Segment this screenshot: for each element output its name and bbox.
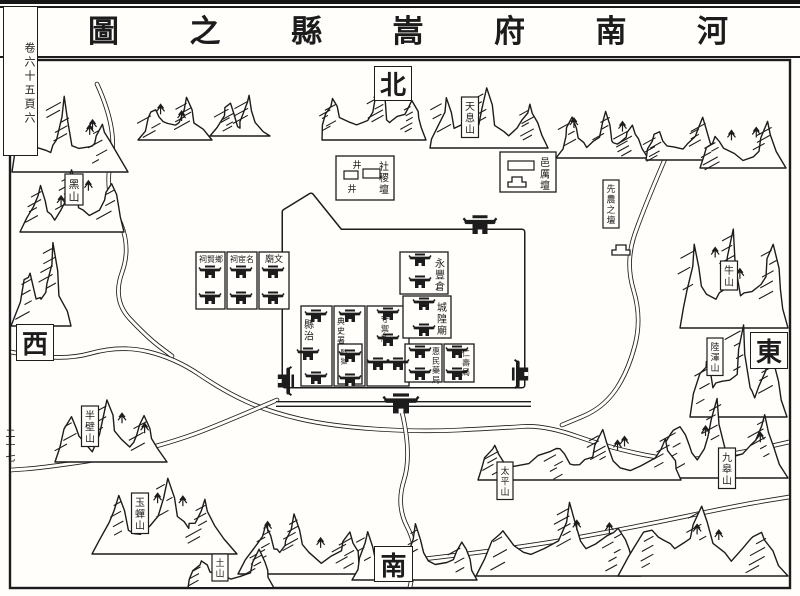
name-cartouche: 九皋山: [719, 448, 736, 489]
title-char: 之: [190, 17, 221, 48]
compound-label: 局: [462, 368, 470, 377]
mountain-ridge: [352, 524, 477, 580]
mountain-ridge: [700, 121, 786, 168]
well-glyph: 井: [352, 159, 361, 171]
building-door: [423, 307, 426, 310]
building-door: [419, 355, 422, 358]
compound-label: 史: [337, 326, 345, 336]
title-char: 嵩: [393, 17, 424, 48]
mountain-ridge: [618, 506, 788, 576]
mountain-name-label: 農: [606, 194, 615, 206]
building-door: [209, 275, 212, 278]
building-door: [399, 409, 404, 414]
compound-label: 厲: [540, 169, 550, 181]
mountain-name-label: 九: [722, 452, 732, 464]
compound-label: 典: [337, 316, 345, 326]
mountain: [210, 95, 270, 136]
compound-label: 仁: [462, 348, 470, 358]
mountain-name-label: 天: [465, 102, 475, 113]
compound-label: 永: [435, 257, 445, 270]
compound-label: 獄: [341, 357, 348, 366]
mountain: [92, 478, 237, 554]
building-door: [377, 367, 380, 370]
name-cartouche: 陸渾山: [707, 338, 723, 376]
margin-page-number: 二十七: [1, 428, 16, 464]
compound-label: 禦: [381, 324, 389, 334]
mountain-name-label: 山: [722, 475, 732, 487]
mountain-name-label: 蟬: [135, 509, 145, 521]
pine-tree-icon: [727, 128, 760, 141]
map-title: 圖 之 縣 嵩 府 南 河: [0, 6, 800, 58]
building-door: [315, 381, 318, 384]
building-door: [272, 301, 275, 304]
mountain-name-label: 太: [500, 465, 509, 477]
compound-label: 城: [437, 302, 447, 314]
mountain: [618, 506, 788, 576]
compound-label: 社: [379, 160, 389, 173]
mountain: [11, 243, 71, 326]
compound-label: 惠: [432, 346, 440, 356]
compound-label: 縣: [304, 319, 314, 331]
compound-label: 隍: [437, 313, 447, 326]
building-door: [387, 343, 390, 346]
temple-label: 祠賢鄉: [199, 254, 223, 264]
compass-north: 北: [374, 66, 412, 101]
building-door: [240, 301, 243, 304]
mountain-name-label: 壇: [606, 215, 615, 227]
building-door: [419, 285, 422, 288]
mountain-name-label: 半: [85, 409, 95, 422]
name-cartouche: 太平山: [497, 462, 513, 500]
mountain: [188, 549, 274, 588]
mountain-name-label: 山: [500, 487, 509, 498]
compound-label: 守: [381, 314, 389, 324]
mountain-name-label: 山: [215, 569, 224, 580]
altar-icon: [612, 245, 630, 255]
name-cartouche: 玉蟬山: [132, 493, 149, 534]
compound-label: 倉: [435, 280, 445, 293]
mountain: [476, 502, 641, 576]
mountain-name-label: 山: [724, 277, 734, 289]
building-door: [419, 377, 422, 380]
building-door: [456, 355, 459, 358]
name-cartouche: 黑山: [65, 174, 83, 205]
mountain-name-label: 皋: [722, 463, 732, 476]
building-door: [349, 319, 352, 322]
mountain-name-label: 之: [606, 204, 615, 216]
name-cartouche: 半壁山: [82, 406, 99, 447]
mountain: [430, 88, 548, 148]
compound-label: 壇: [540, 179, 550, 192]
compound-label: 署: [337, 336, 345, 345]
compass-east: 東: [750, 332, 788, 369]
building-door: [209, 301, 212, 304]
compound-label: 藥: [432, 365, 440, 375]
mountain-name-label: 渾: [710, 353, 719, 364]
mountain-name-label: 山: [69, 191, 80, 204]
building-door: [478, 230, 483, 235]
mountain-name-label: 山: [710, 363, 719, 374]
mountain-ridge: [430, 88, 548, 148]
building-door: [240, 275, 243, 278]
compound-label: 稷: [379, 173, 389, 185]
well-glyph: 井: [347, 183, 356, 195]
title-char: 河: [697, 17, 728, 48]
building-door: [397, 367, 400, 370]
building-door: [349, 359, 352, 362]
building-door: [307, 357, 310, 360]
compound-label: 壽: [462, 358, 470, 368]
temple-label: 廟文: [265, 253, 283, 265]
compass-south: 南: [374, 546, 413, 582]
title-char: 圖: [88, 17, 119, 48]
name-cartouche: 土山: [212, 554, 228, 581]
compass-west: 西: [16, 324, 54, 361]
pine-tree-icon: [570, 118, 627, 132]
title-char: 府: [494, 17, 525, 48]
mountain: [55, 400, 167, 462]
building-door: [315, 319, 318, 322]
mountain-name-label: 牛: [724, 264, 734, 277]
mountain-name-label: 壁: [85, 421, 95, 434]
mountain-name-label: 山: [85, 433, 95, 445]
mountain-ridge: [11, 243, 71, 326]
building-door: [272, 275, 275, 278]
compound-label: 所: [381, 333, 389, 343]
compound-label: 民: [432, 357, 440, 366]
mountain-name-label: 黑: [69, 178, 80, 191]
compound-label: 局: [432, 376, 440, 385]
name-cartouche: 先農之壇: [603, 180, 619, 228]
mountain: [352, 524, 477, 580]
building-door: [419, 263, 422, 266]
compound-label: 壇: [379, 183, 389, 196]
name-cartouche: 牛山: [721, 261, 738, 290]
folio-label: 卷六十五頁六: [3, 6, 38, 156]
compound-label: 監: [341, 348, 348, 357]
mountain-name-label: 玉: [135, 498, 145, 509]
building-door: [456, 377, 459, 380]
title-char: 縣: [291, 17, 322, 48]
compound-label: 邑: [540, 157, 550, 169]
temple-label: 祠宦名: [230, 254, 254, 264]
mountain-name-label: 平: [500, 477, 509, 488]
mountain-ridge: [55, 400, 167, 462]
mountain-name-label: 息: [465, 112, 475, 125]
mountain-name-label: 土: [215, 557, 224, 569]
mountain: [137, 97, 212, 140]
compound-label: 廟: [437, 324, 447, 337]
building-door: [349, 383, 352, 386]
building-door: [524, 372, 528, 376]
mountain: [556, 111, 648, 158]
mountain-name-label: 山: [465, 124, 475, 136]
name-cartouche: 天息山: [462, 97, 479, 138]
mountain-name-label: 先: [606, 183, 615, 195]
mountain: [700, 121, 786, 169]
building-door: [423, 333, 426, 336]
mountain-name-label: 山: [135, 520, 145, 532]
mountain-ridge: [210, 95, 270, 136]
mountain-ridge: [92, 478, 237, 554]
map-page: 圖 之 縣 嵩 府 南 河 卷六十五頁六 二十七 北 南 西 東 井井縣治典史署…: [0, 0, 800, 596]
building-door: [278, 379, 282, 383]
title-char: 南: [596, 17, 627, 48]
mountain-name-label: 陸: [710, 341, 719, 353]
compound-label: 豐: [435, 269, 445, 282]
compound-label: 治: [304, 330, 314, 343]
